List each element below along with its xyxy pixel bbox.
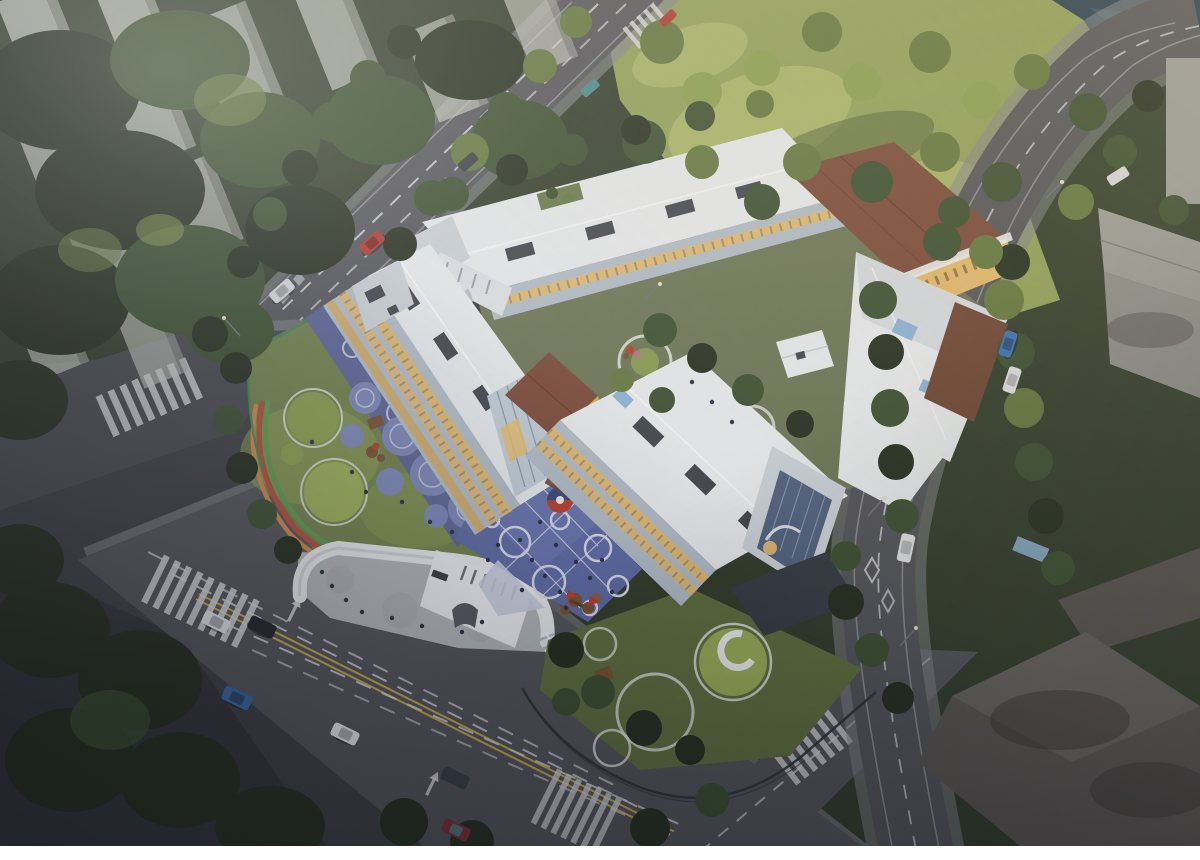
cool-tint [0, 0, 1200, 860]
aerial-render [0, 0, 1200, 860]
bottom-white-margin [0, 846, 1200, 860]
scene-canvas [0, 0, 1200, 860]
